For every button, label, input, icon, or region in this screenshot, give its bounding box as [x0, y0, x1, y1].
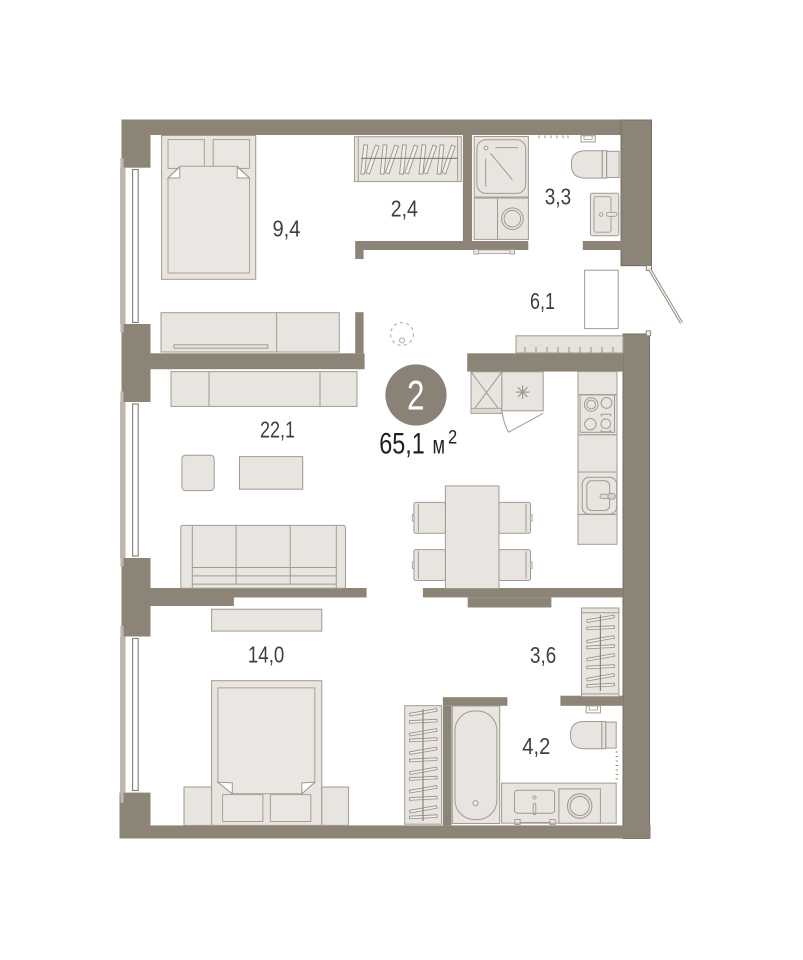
- svg-text:2: 2: [448, 428, 457, 449]
- svg-text:4,2: 4,2: [522, 733, 550, 759]
- svg-text:м: м: [433, 430, 446, 460]
- svg-text:2,4: 2,4: [391, 195, 418, 221]
- svg-text:65,1: 65,1: [379, 428, 425, 461]
- svg-text:3,6: 3,6: [530, 642, 556, 668]
- svg-text:6,1: 6,1: [530, 288, 555, 314]
- svg-text:9,4: 9,4: [273, 216, 301, 242]
- svg-text:14,0: 14,0: [248, 642, 284, 668]
- svg-text:3,3: 3,3: [545, 183, 571, 209]
- svg-text:22,1: 22,1: [260, 417, 295, 443]
- svg-text:2: 2: [407, 372, 425, 419]
